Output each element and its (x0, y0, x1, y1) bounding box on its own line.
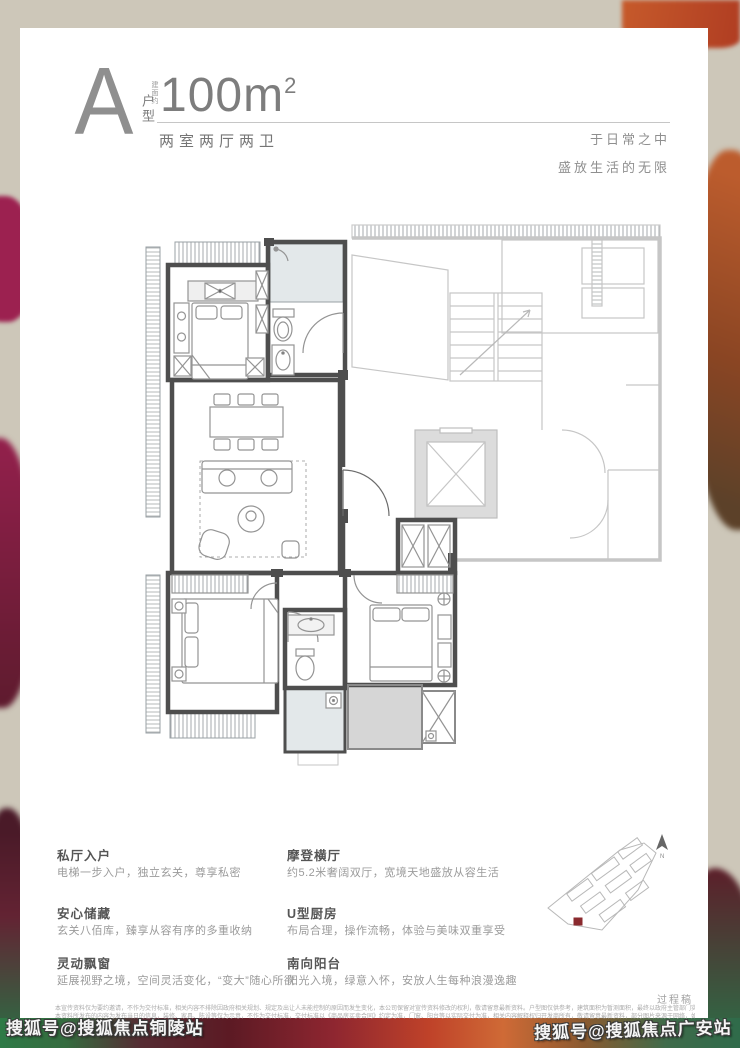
floor-plan (130, 215, 670, 815)
stairs (450, 293, 542, 381)
slogan-line1: 于日常之中 (590, 129, 670, 148)
entry-door (343, 470, 389, 516)
feature-desc-3: 延展视野之境，空间灵活变化，“变大”随心所欲 (57, 972, 295, 988)
watermark-left: 搜狐号@搜狐焦点铜陵站 (6, 1014, 204, 1039)
highlight-building (574, 918, 582, 925)
area-value: 100m2 (160, 68, 297, 123)
feature-title-2: 安心储藏 (57, 903, 111, 922)
poster-card: A 户型 建面约 100m2 两室两厅两卫 于日常之中 盛放生活的无限 (20, 28, 708, 1018)
area-sup: 2 (284, 73, 297, 98)
feature-desc-6: 阳光入境，绿意入怀，安放人生每种浪漫逸趣 (287, 972, 517, 988)
master-bed (174, 271, 268, 379)
header-divider (157, 122, 670, 123)
bath2 (288, 612, 334, 680)
slogan-line2: 盛放生活的无限 (558, 157, 670, 176)
feature-title-3: 灵动飘窗 (57, 953, 111, 972)
feature-title-5: U型厨房 (287, 903, 338, 922)
bedroom2 (172, 575, 278, 683)
unit-type-letter: A (75, 54, 134, 150)
feature-desc-4: 约5.2米奢阔双厅，宽境天地盛放从容生活 (287, 864, 499, 880)
bedroom3 (354, 525, 453, 682)
site-plan: N (540, 826, 710, 1001)
compass-icon: N (656, 834, 668, 860)
svg-text:N: N (660, 854, 664, 860)
elevator (415, 428, 497, 518)
feature-desc-1: 电梯一步入户，独立玄关，尊享私密 (57, 864, 241, 880)
living-set (197, 461, 306, 562)
feature-title-4: 摩登横厅 (287, 845, 341, 864)
feature-title-1: 私厅入户 (57, 845, 111, 864)
dining-set (210, 394, 283, 450)
common-core (352, 225, 660, 560)
watermark-right: 搜狐号@搜狐焦点广安站 (534, 1013, 732, 1043)
feature-desc-2: 玄关八佰库，臻享从容有序的多重收纳 (57, 922, 253, 938)
balcony (326, 693, 341, 708)
furniture (172, 247, 455, 743)
feature-title-6: 南向阳台 (287, 953, 341, 972)
feature-desc-5: 布局合理，操作流畅，体验与美味双重享受 (287, 922, 506, 938)
area-prefix: 建面约 (149, 81, 159, 105)
layout-label: 两室两厅两卫 (159, 130, 279, 151)
